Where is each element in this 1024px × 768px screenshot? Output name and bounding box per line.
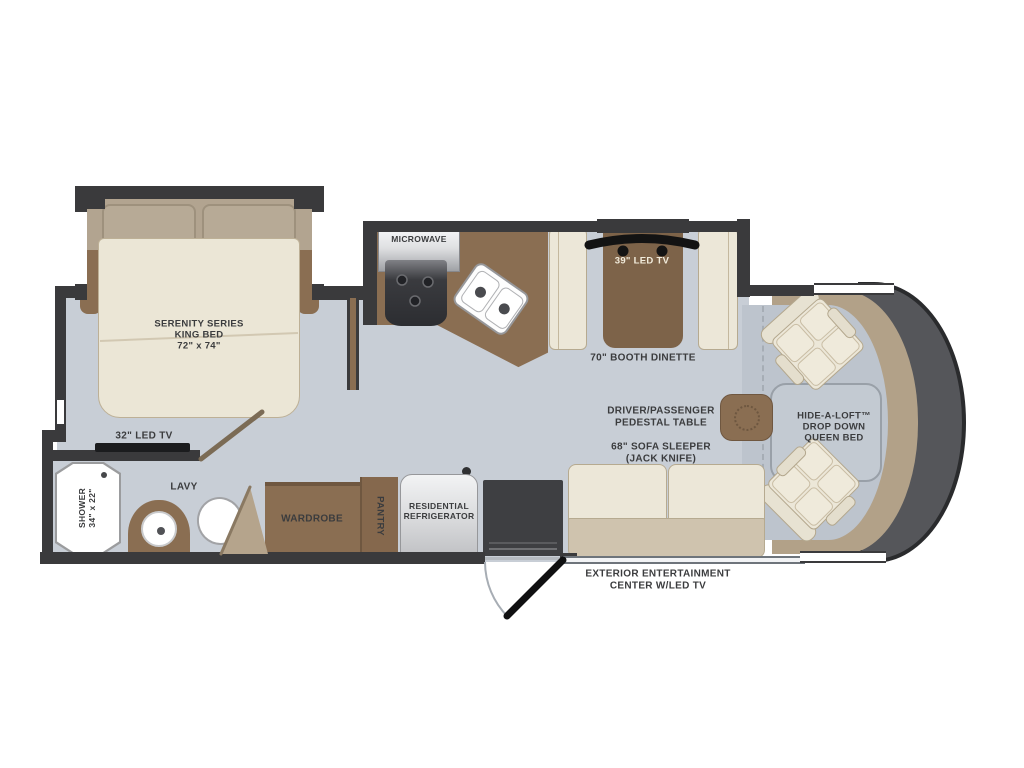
rv-floorplan: SERENITY SERIES KING BED 72" x 74" 32" L… — [0, 0, 1024, 768]
sofa-seat — [568, 518, 765, 558]
microwave-label: MICROWAVE — [391, 235, 446, 245]
refrigerator-label: RESIDENTIAL REFRIGERATOR — [404, 502, 475, 522]
hide-a-loft-label: HIDE-A-LOFT™ DROP DOWN QUEEN BED — [797, 412, 871, 445]
entry-door-panel — [507, 560, 563, 616]
wall-bottom-main — [40, 552, 485, 564]
sofa-back-left — [568, 464, 667, 521]
sofa-back-right — [668, 464, 765, 521]
bedroom-tv-label: 32" LED TV — [115, 430, 172, 442]
cooktop-stove — [385, 260, 447, 326]
slide-wall-top — [75, 186, 324, 199]
dinette-bench-left — [549, 228, 587, 350]
dinette-tv-label: 39" LED TV — [615, 257, 670, 268]
wall-kitchen-left — [363, 221, 377, 325]
bedroom-tv — [95, 443, 190, 452]
cab-window-bottom — [800, 551, 886, 563]
pedestal-table-label: DRIVER/PASSENGER PEDESTAL TABLE — [607, 406, 714, 429]
cab-window-top — [814, 283, 894, 295]
bedroom-pocket-door — [347, 298, 359, 390]
entry-threshold — [483, 557, 563, 560]
wall-rear-upper — [55, 286, 66, 404]
wall-cab-top — [748, 285, 814, 296]
lavy-label: LAVY — [170, 481, 197, 493]
wall-bedroom-stub — [322, 286, 367, 300]
vanity-sink — [141, 511, 177, 547]
dinette-bench-right — [698, 228, 738, 350]
pantry-label: PANTRY — [374, 496, 385, 536]
wall-exterior-entertainment — [563, 556, 805, 564]
pedestal-table — [720, 394, 773, 441]
booth-dinette-label: 70" BOOTH DINETTE — [590, 352, 695, 364]
dinette-table — [603, 226, 683, 348]
exterior-entertainment-label: EXTERIOR ENTERTAINMENT CENTER W/LED TV — [585, 569, 730, 592]
slide-window-left — [75, 212, 87, 284]
dinette-tv-cabinet — [597, 219, 689, 233]
entry-step-well — [483, 480, 563, 556]
sofa-label: 68" SOFA SLEEPER (JACK KNIFE) — [611, 442, 711, 465]
wardrobe-label: WARDROBE — [281, 513, 343, 525]
wall-top-kitchen — [363, 221, 749, 232]
rear-window — [55, 400, 66, 426]
king-bed-label: SERENITY SERIES KING BED 72" x 74" — [154, 320, 243, 353]
shower-label: SHOWER 34" x 22" — [78, 488, 98, 528]
entry-door-arc — [485, 562, 508, 617]
slide-window-right — [312, 212, 324, 284]
pedestal-table-top-detail — [734, 405, 760, 431]
